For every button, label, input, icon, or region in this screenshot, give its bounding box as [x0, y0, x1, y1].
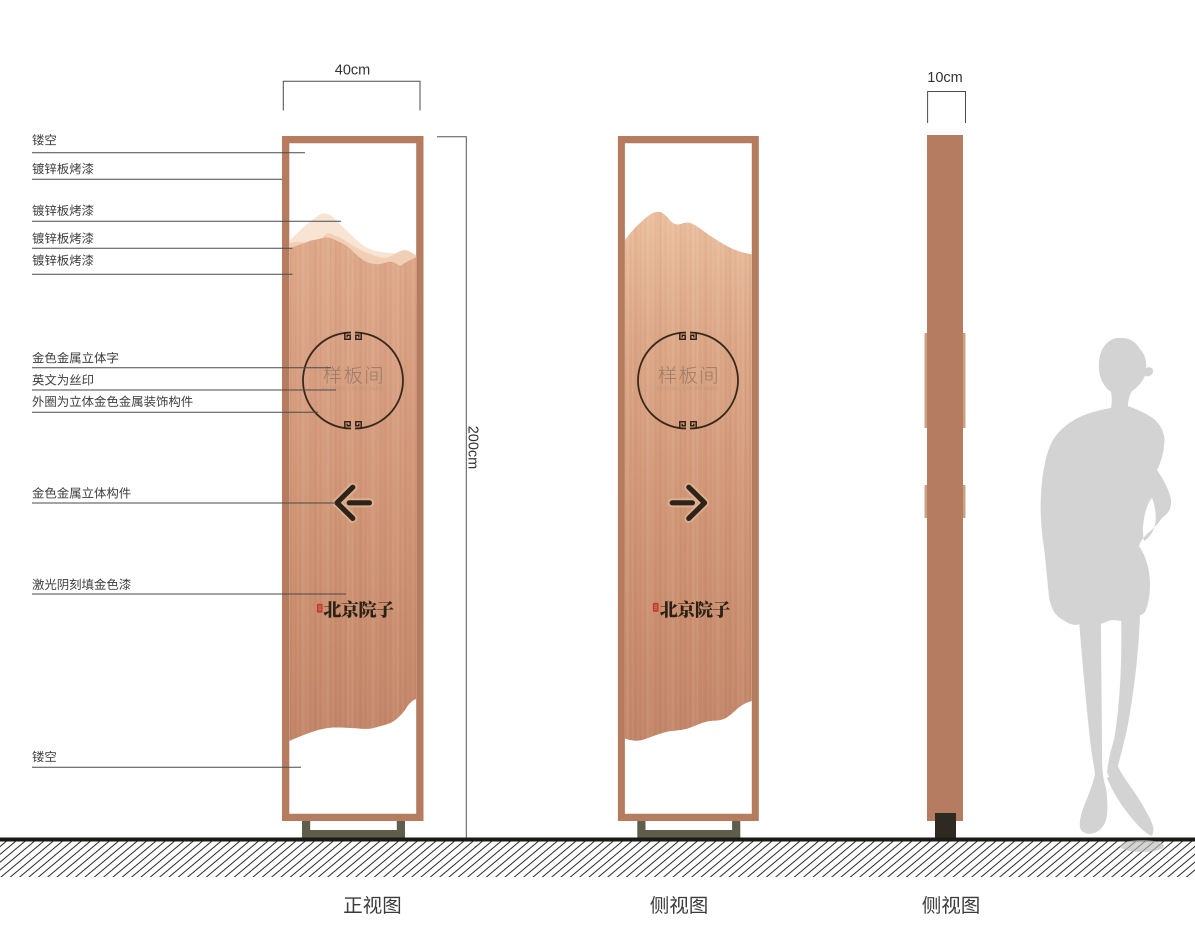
svg-text:40cm: 40cm [335, 63, 370, 79]
svg-text:10cm: 10cm [927, 70, 962, 86]
svg-text:BEIJING COURTYARD: BEIJING COURTYARD [657, 387, 719, 393]
svg-text:200cm: 200cm [465, 426, 481, 470]
